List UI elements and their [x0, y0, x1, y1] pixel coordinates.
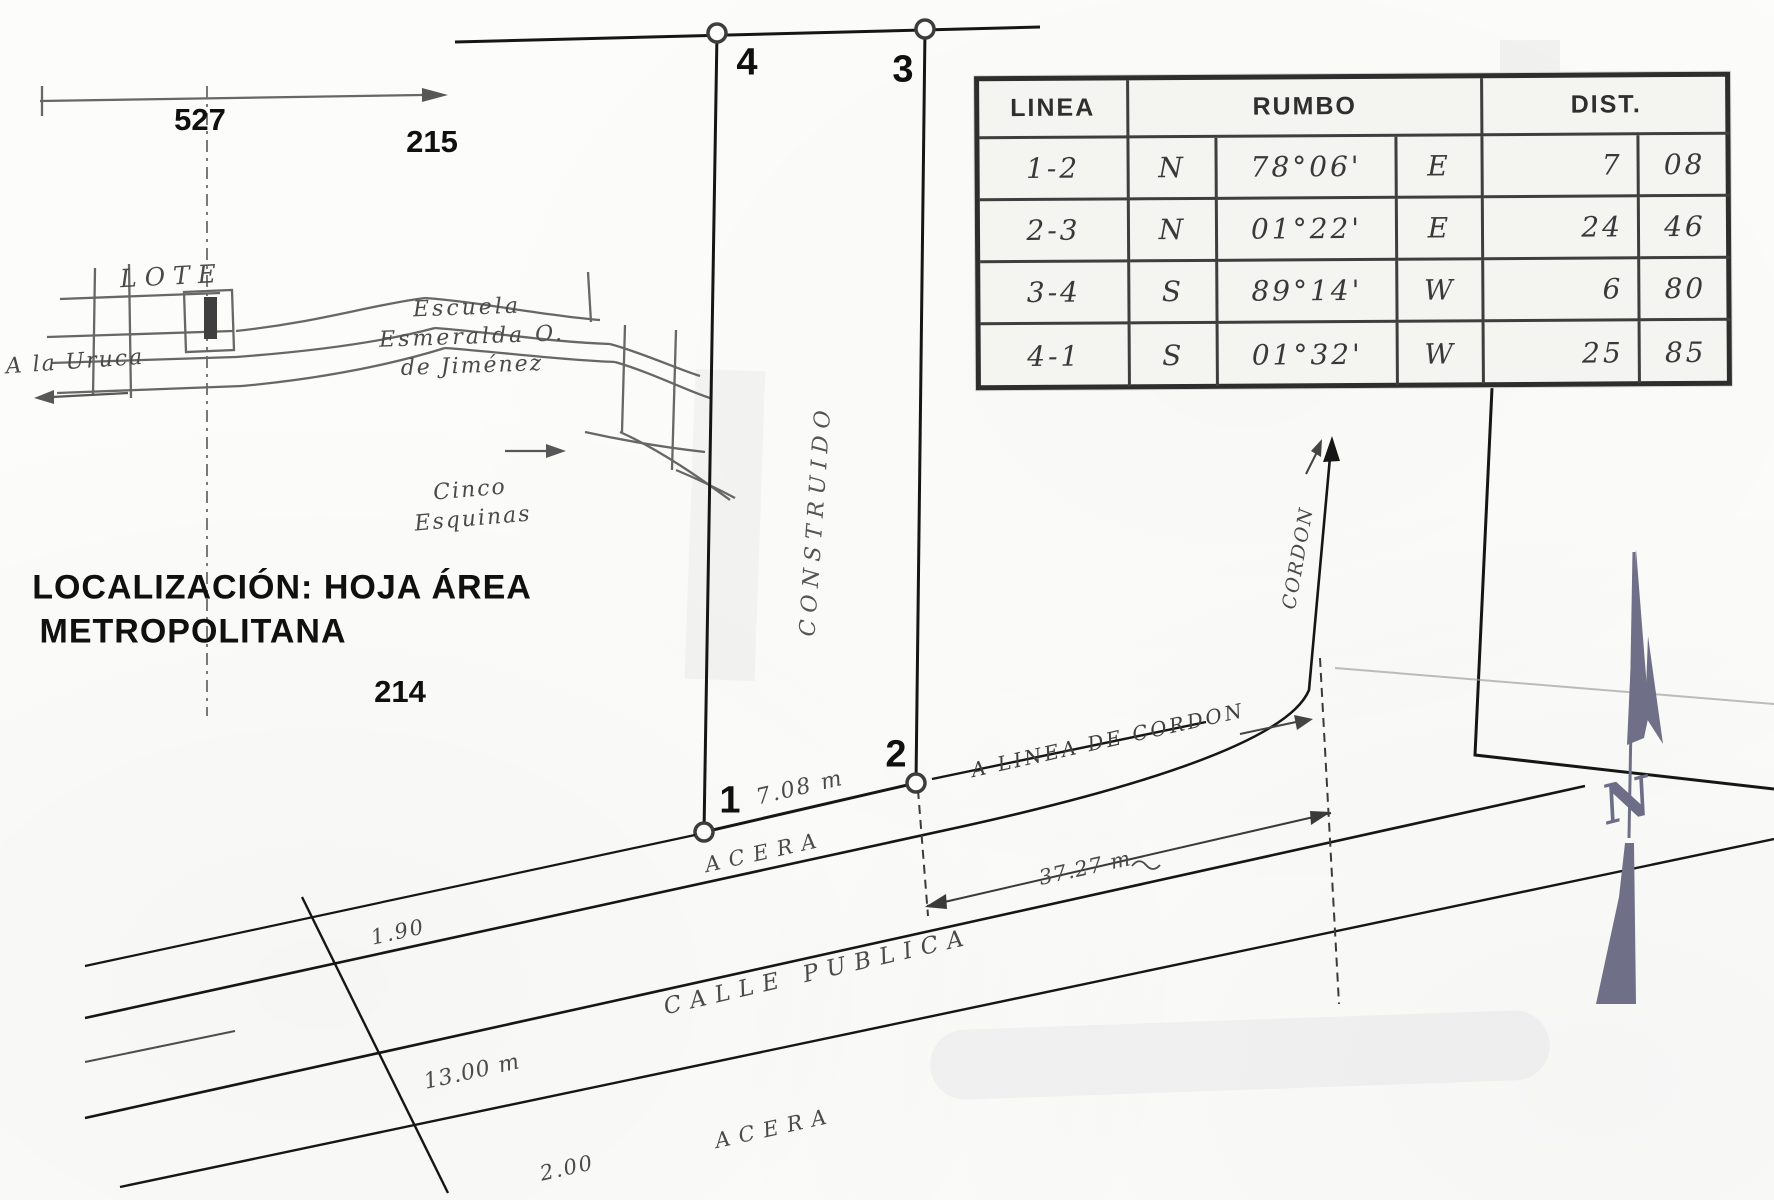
- map-label-lote: LOTE: [119, 259, 224, 293]
- table-cell-ns: N: [1130, 200, 1218, 263]
- property-line: [85, 835, 695, 966]
- dim-3727-squiggle: [1132, 861, 1160, 869]
- right-boundary-line: [1475, 388, 1774, 789]
- table-header-linea: LINEA: [979, 80, 1129, 139]
- vertex-1-marker: [695, 823, 713, 841]
- map-street: [60, 293, 220, 299]
- lot-outline: [455, 27, 1040, 832]
- table-cell-dist-int: 24: [1484, 197, 1640, 260]
- table-cell-dist-dec: 80: [1640, 259, 1730, 322]
- table-cell-dist-dec: 08: [1639, 135, 1729, 198]
- table-cell-linea: 2-3: [980, 200, 1130, 263]
- cordon-arrow-icon: [1323, 436, 1340, 462]
- dim-3727-arrow-right-icon: [1310, 811, 1331, 825]
- vertex-4-marker: [708, 24, 726, 42]
- street-bottom-edge: [85, 786, 1585, 1118]
- map-top-line: [40, 95, 422, 101]
- map-street: [622, 325, 625, 432]
- grid-ref-214: 214: [374, 674, 426, 710]
- table-header-rumbo: RUMBO: [1129, 78, 1483, 138]
- table-cell-linea: 1-2: [979, 138, 1129, 201]
- map-arrows: [34, 88, 566, 458]
- map-street: [588, 272, 591, 322]
- top-boundary-line: [455, 27, 1040, 42]
- map-road: [236, 298, 425, 331]
- table-cell-dist-int: 6: [1484, 259, 1640, 322]
- table-cell-dist-int: 25: [1485, 321, 1641, 384]
- north-arrow-tail: [1596, 843, 1636, 1004]
- table-cell-angle: 01°22': [1218, 199, 1398, 262]
- table-cell-dist-dec: 46: [1640, 197, 1730, 260]
- vertex-label-2: 2: [885, 734, 906, 777]
- map-road: [615, 362, 710, 398]
- table-cell-ew: E: [1398, 198, 1484, 261]
- map-road: [676, 470, 735, 498]
- map-street: [57, 386, 242, 393]
- vertex-label-3: 3: [892, 49, 913, 92]
- localizacion-caption-line1: LOCALIZACIÓN: HOJA ÁREA: [32, 569, 532, 608]
- table-cell-ew: E: [1397, 136, 1483, 199]
- dashed-offset-line-corner: [1320, 658, 1339, 1004]
- grid-ref-215: 215: [406, 124, 458, 160]
- uruca-arrow-icon: [34, 390, 54, 404]
- vertex-label-4: 4: [736, 42, 757, 85]
- cordon-label-arrow-icon: [1311, 439, 1322, 457]
- table-cell-linea: 4-1: [981, 324, 1131, 387]
- street-lines: [85, 388, 1774, 1193]
- map-right-arrow-icon: [546, 444, 566, 458]
- map-road: [585, 432, 705, 452]
- map-label-escuela-line1: Escuela: [413, 294, 522, 323]
- north-arrow-barb: [1645, 636, 1663, 744]
- left-stub-line: [85, 1031, 235, 1062]
- map-label-escuela-line3: de Jiménez: [400, 351, 543, 381]
- bearing-table: LINEA RUMBO DIST. 1-2 N 78°06' E 7 08 2-…: [974, 72, 1732, 391]
- lot-side-3-2: [916, 29, 925, 783]
- table-cell-ns: N: [1129, 138, 1217, 201]
- table-cell-angle: 89°14': [1218, 261, 1398, 324]
- faint-street-line: [1335, 668, 1774, 704]
- grid-ref-527: 527: [174, 102, 226, 138]
- dim-3727-arrow-left-icon: [925, 894, 947, 909]
- vertex-2-marker: [907, 774, 925, 792]
- linea-cordon-arrow-line: [1240, 722, 1296, 734]
- map-lot-marker: [204, 297, 217, 339]
- vertex-3-marker: [916, 20, 934, 38]
- table-cell-ns: S: [1130, 262, 1218, 325]
- map-top-arrow-icon: [422, 88, 448, 102]
- table-header-dist: DIST.: [1483, 77, 1729, 137]
- table-cell-ew: W: [1398, 260, 1484, 323]
- dashed-offset-line-pt2: [918, 790, 928, 916]
- sidewalk-bottom-edge: [120, 839, 1774, 1187]
- linea-cordon-arrow-icon: [1294, 715, 1313, 730]
- table-cell-dist-int: 7: [1483, 135, 1639, 198]
- table-cell-ew: W: [1399, 322, 1485, 385]
- table-cell-angle: 78°06': [1217, 137, 1397, 200]
- table-cell-linea: 3-4: [980, 262, 1130, 325]
- survey-plan-scan: LINEA RUMBO DIST. 1-2 N 78°06' E 7 08 2-…: [0, 0, 1774, 1200]
- localizacion-caption-line2: METROPOLITANA: [39, 613, 346, 652]
- table-cell-ns: S: [1131, 324, 1219, 387]
- table-cell-dist-dec: 85: [1641, 321, 1731, 384]
- map-street: [93, 268, 95, 396]
- lot-side-4-1: [704, 33, 717, 832]
- vertex-label-1: 1: [719, 780, 740, 823]
- table-cell-angle: 01°32': [1219, 323, 1399, 386]
